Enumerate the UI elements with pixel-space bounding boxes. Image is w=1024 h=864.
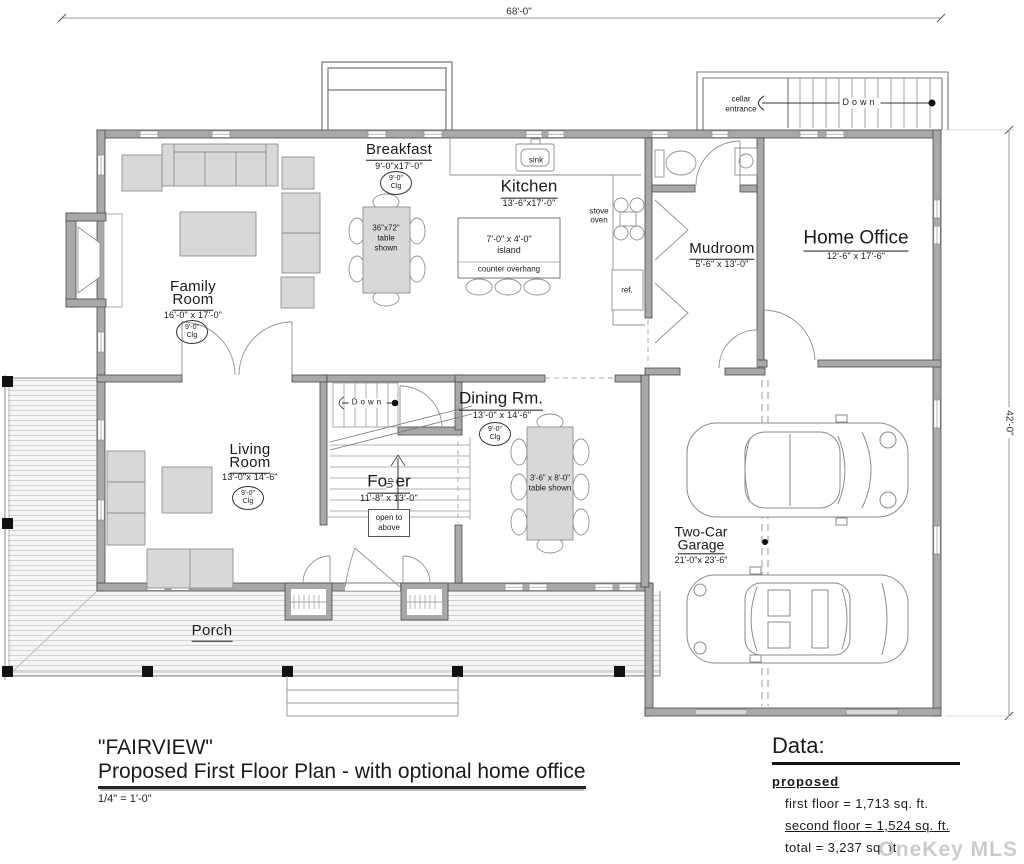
front-door-opening: [345, 583, 400, 590]
breakfast-table-size: 36"x72": [372, 225, 399, 234]
powder-room-fixtures: [655, 148, 757, 177]
family-ceiling-tag: 9'-0" Clg: [176, 320, 208, 344]
title-block: "FAIRVIEW" Proposed First Floor Plan - w…: [98, 736, 586, 805]
breakfast-table-text2: table: [377, 235, 394, 244]
plan-subtitle: Proposed First Floor Plan - with optiona…: [98, 760, 586, 789]
clg-height: 9'-0": [488, 426, 502, 434]
clg-text: Clg: [187, 332, 198, 340]
room-label-mudroom: Mudroom: [689, 241, 754, 260]
counter-overhang-label: counter overhang: [478, 266, 540, 275]
clg-text: Clg: [243, 498, 254, 506]
data-status: proposed: [772, 774, 960, 789]
porch-steps: [287, 676, 458, 716]
mudroom-dims: 5'-6" x 13'-0": [695, 260, 748, 270]
room-label-dining: Dining Rm.: [459, 390, 543, 411]
breakfast-ceiling-tag: 9'-0" Clg: [380, 171, 412, 195]
cellar-entrance-label: cellar: [731, 96, 750, 105]
mls-watermark: OneKey MLS: [878, 838, 1018, 862]
clg-text: Clg: [490, 434, 501, 442]
room-label-living2: Room: [229, 455, 270, 474]
room-label-kitchen: Kitchen: [501, 178, 558, 199]
kitchen-dims: 13'-6"x17'-0": [503, 199, 556, 209]
room-label-porch: Porch: [192, 623, 233, 642]
stairs-up-label: Up: [387, 475, 396, 491]
open-to-above-note: open to above: [368, 509, 410, 537]
plan-scale: 1/4" = 1'-0": [98, 793, 586, 805]
dining-dims: 13'-0" x 14'-6": [473, 411, 531, 421]
data-first-floor: first floor = 1,713 sq. ft.: [785, 796, 960, 811]
door-swings: [182, 141, 815, 587]
open-note-line1: open to: [376, 513, 403, 523]
height-dimension: 42'-0": [1004, 407, 1015, 438]
oven-label: oven: [590, 217, 607, 226]
home-office-dims: 12'-6" x 17'-6": [827, 252, 885, 262]
living-room-furniture: [107, 451, 233, 588]
island-size: 7'-0" x 4'-0": [486, 235, 531, 245]
clg-height: 9'-0": [389, 175, 403, 183]
living-dims: 13'-0"x 14'-6": [222, 473, 278, 483]
room-label-home-office: Home Office: [803, 229, 908, 252]
dining-table-text2: table shown: [529, 485, 572, 494]
island-label: island: [497, 246, 521, 256]
stairs-down-label: Down: [349, 399, 387, 408]
cellar-down-label: Down: [839, 98, 880, 108]
room-label-family2: Room: [172, 292, 213, 311]
plan-name: "FAIRVIEW": [98, 736, 586, 760]
room-label-garage2: Garage: [678, 537, 725, 554]
floor-plan: 68'-0" 42'-0" cellar entrance Down Break…: [0, 0, 1024, 864]
foyer-dims: 11'-8" x 13'-0": [360, 494, 418, 504]
open-note-line2: above: [378, 523, 400, 533]
breakfast-bay: [322, 62, 452, 130]
breakfast-table-text3: shown: [374, 245, 397, 254]
cellar-entrance-label2: entrance: [725, 106, 756, 115]
data-heading: Data:: [772, 733, 960, 765]
garage-dims: 21'-0"x 23'-6": [675, 556, 728, 566]
ref-label: ref.: [621, 287, 633, 296]
clg-height: 9'-0": [185, 324, 199, 332]
sink-label: sink: [529, 157, 543, 166]
family-room-furniture: [122, 144, 320, 308]
fireplace: [66, 213, 122, 307]
dining-table-size: 3'-6" x 8'-0": [530, 475, 570, 484]
room-label-breakfast: Breakfast: [366, 142, 432, 161]
clg-text: Clg: [391, 183, 402, 191]
living-ceiling-tag: 9'-0" Clg: [232, 486, 264, 510]
clg-height: 9'-0": [241, 490, 255, 498]
width-dimension: 68'-0": [503, 7, 534, 18]
dining-ceiling-tag: 9'-0" Clg: [479, 422, 511, 446]
kitchen-island: [458, 218, 560, 295]
data-second-floor: second floor = 1,524 sq. ft.: [785, 818, 960, 833]
